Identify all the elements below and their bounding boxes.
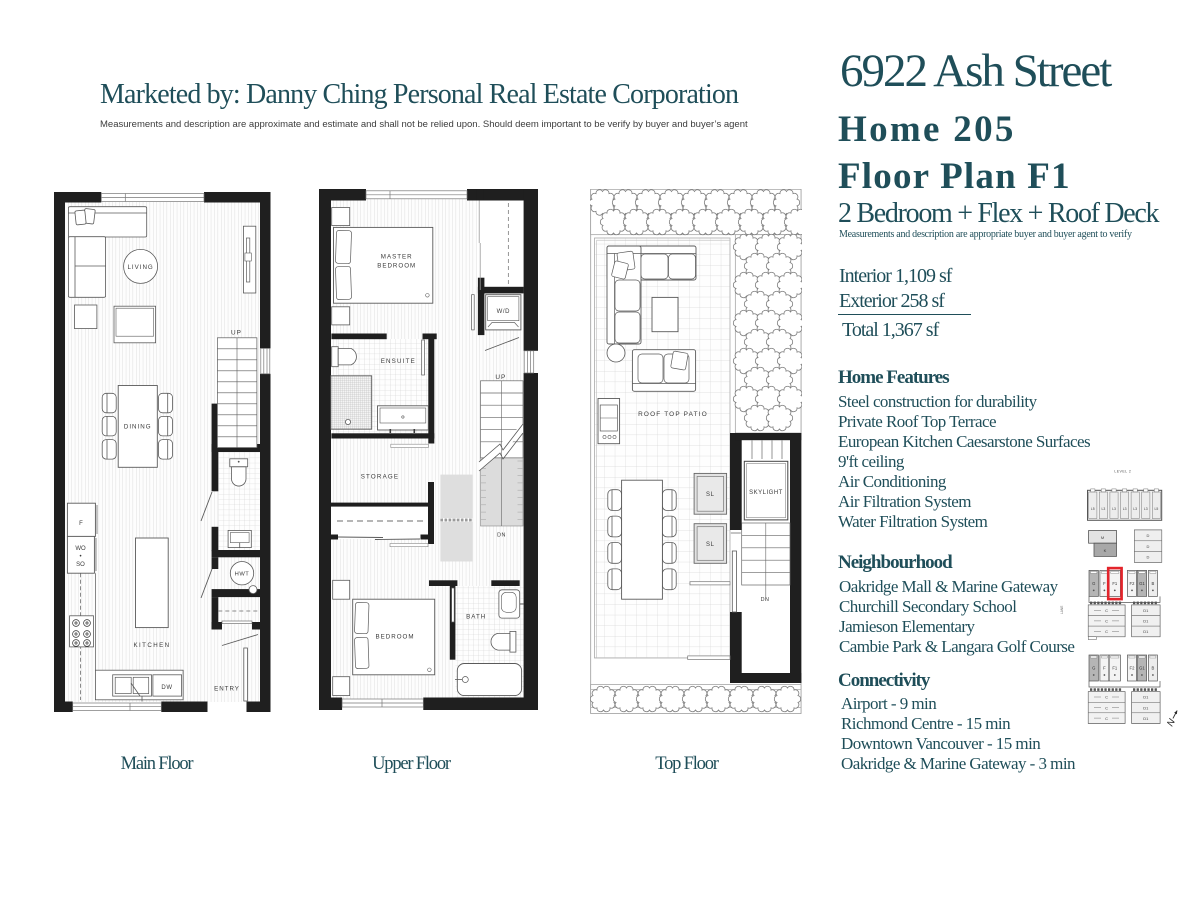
svg-text:C: C [1105, 619, 1108, 624]
svg-text:ENTRY: ENTRY [214, 686, 240, 693]
svg-text:DW: DW [161, 685, 172, 691]
svg-text:L3: L3 [1123, 507, 1127, 511]
svg-text:F: F [79, 521, 83, 527]
svg-text:SL: SL [706, 492, 715, 498]
svg-text:C: C [1105, 629, 1108, 634]
svg-text:DN: DN [497, 533, 506, 539]
svg-text:BEDROOM: BEDROOM [377, 262, 416, 269]
svg-text:SO: SO [76, 562, 85, 568]
svg-text:G: G [1092, 666, 1095, 671]
svg-text:B: B [1152, 581, 1155, 586]
svg-text:ROOF TOP PATIO: ROOF TOP PATIO [638, 411, 708, 418]
svg-text:SKYLIGHT: SKYLIGHT [749, 490, 783, 496]
svg-text:D: D [1147, 533, 1150, 538]
svg-text:M: M [1101, 535, 1104, 540]
svg-text:SL: SL [706, 542, 715, 548]
svg-text:L3: L3 [1112, 507, 1116, 511]
svg-text:HWT: HWT [235, 572, 250, 578]
svg-text:F: F [1103, 666, 1106, 671]
svg-text:G1: G1 [1139, 581, 1145, 586]
svg-text:DINING: DINING [124, 424, 152, 431]
svg-text:D1: D1 [1143, 695, 1149, 700]
svg-text:D1: D1 [1143, 629, 1149, 634]
svg-text:L3: L3 [1102, 507, 1106, 511]
svg-text:C: C [1105, 705, 1108, 710]
svg-text:BATH: BATH [466, 614, 486, 621]
svg-text:D1: D1 [1143, 716, 1149, 721]
svg-text:L3: L3 [1133, 507, 1137, 511]
svg-text:B: B [1152, 666, 1155, 671]
svg-text:D: D [1147, 544, 1150, 549]
svg-text:L5: L5 [1155, 507, 1159, 511]
svg-text:DN: DN [761, 597, 770, 603]
svg-text:ENSUITE: ENSUITE [381, 358, 416, 365]
svg-text:MASTER: MASTER [381, 253, 413, 260]
svg-text:C: C [1105, 608, 1108, 613]
svg-text:UP: UP [495, 374, 506, 381]
svg-text:D1: D1 [1143, 619, 1149, 624]
svg-text:•: • [79, 554, 81, 560]
svg-text:STORAGE: STORAGE [361, 474, 400, 481]
svg-text:LEVEL 2: LEVEL 2 [1114, 470, 1131, 474]
svg-text:F: F [1103, 581, 1106, 586]
svg-text:L3: L3 [1144, 507, 1148, 511]
svg-text:KITCHEN: KITCHEN [134, 642, 171, 649]
svg-text:C: C [1105, 695, 1108, 700]
svg-text:G: G [1092, 581, 1095, 586]
svg-text:N: N [1165, 717, 1178, 728]
svg-text:F1: F1 [1112, 666, 1118, 671]
svg-text:BEDROOM: BEDROOM [376, 634, 415, 641]
svg-text:D: D [1147, 555, 1150, 560]
svg-text:G1: G1 [1139, 666, 1145, 671]
svg-text:D1: D1 [1143, 608, 1149, 613]
svg-text:F2: F2 [1130, 666, 1136, 671]
svg-text:WO: WO [75, 546, 86, 552]
svg-text:F2: F2 [1130, 581, 1136, 586]
svg-text:K: K [1104, 548, 1107, 553]
svg-text:L5: L5 [1091, 507, 1095, 511]
svg-text:W/D: W/D [497, 309, 511, 315]
svg-text:C: C [1105, 716, 1108, 721]
svg-text:F1: F1 [1112, 581, 1118, 586]
svg-text:D1: D1 [1143, 705, 1149, 710]
svg-text:UP: UP [231, 330, 242, 337]
svg-text:LIVING: LIVING [127, 264, 153, 271]
